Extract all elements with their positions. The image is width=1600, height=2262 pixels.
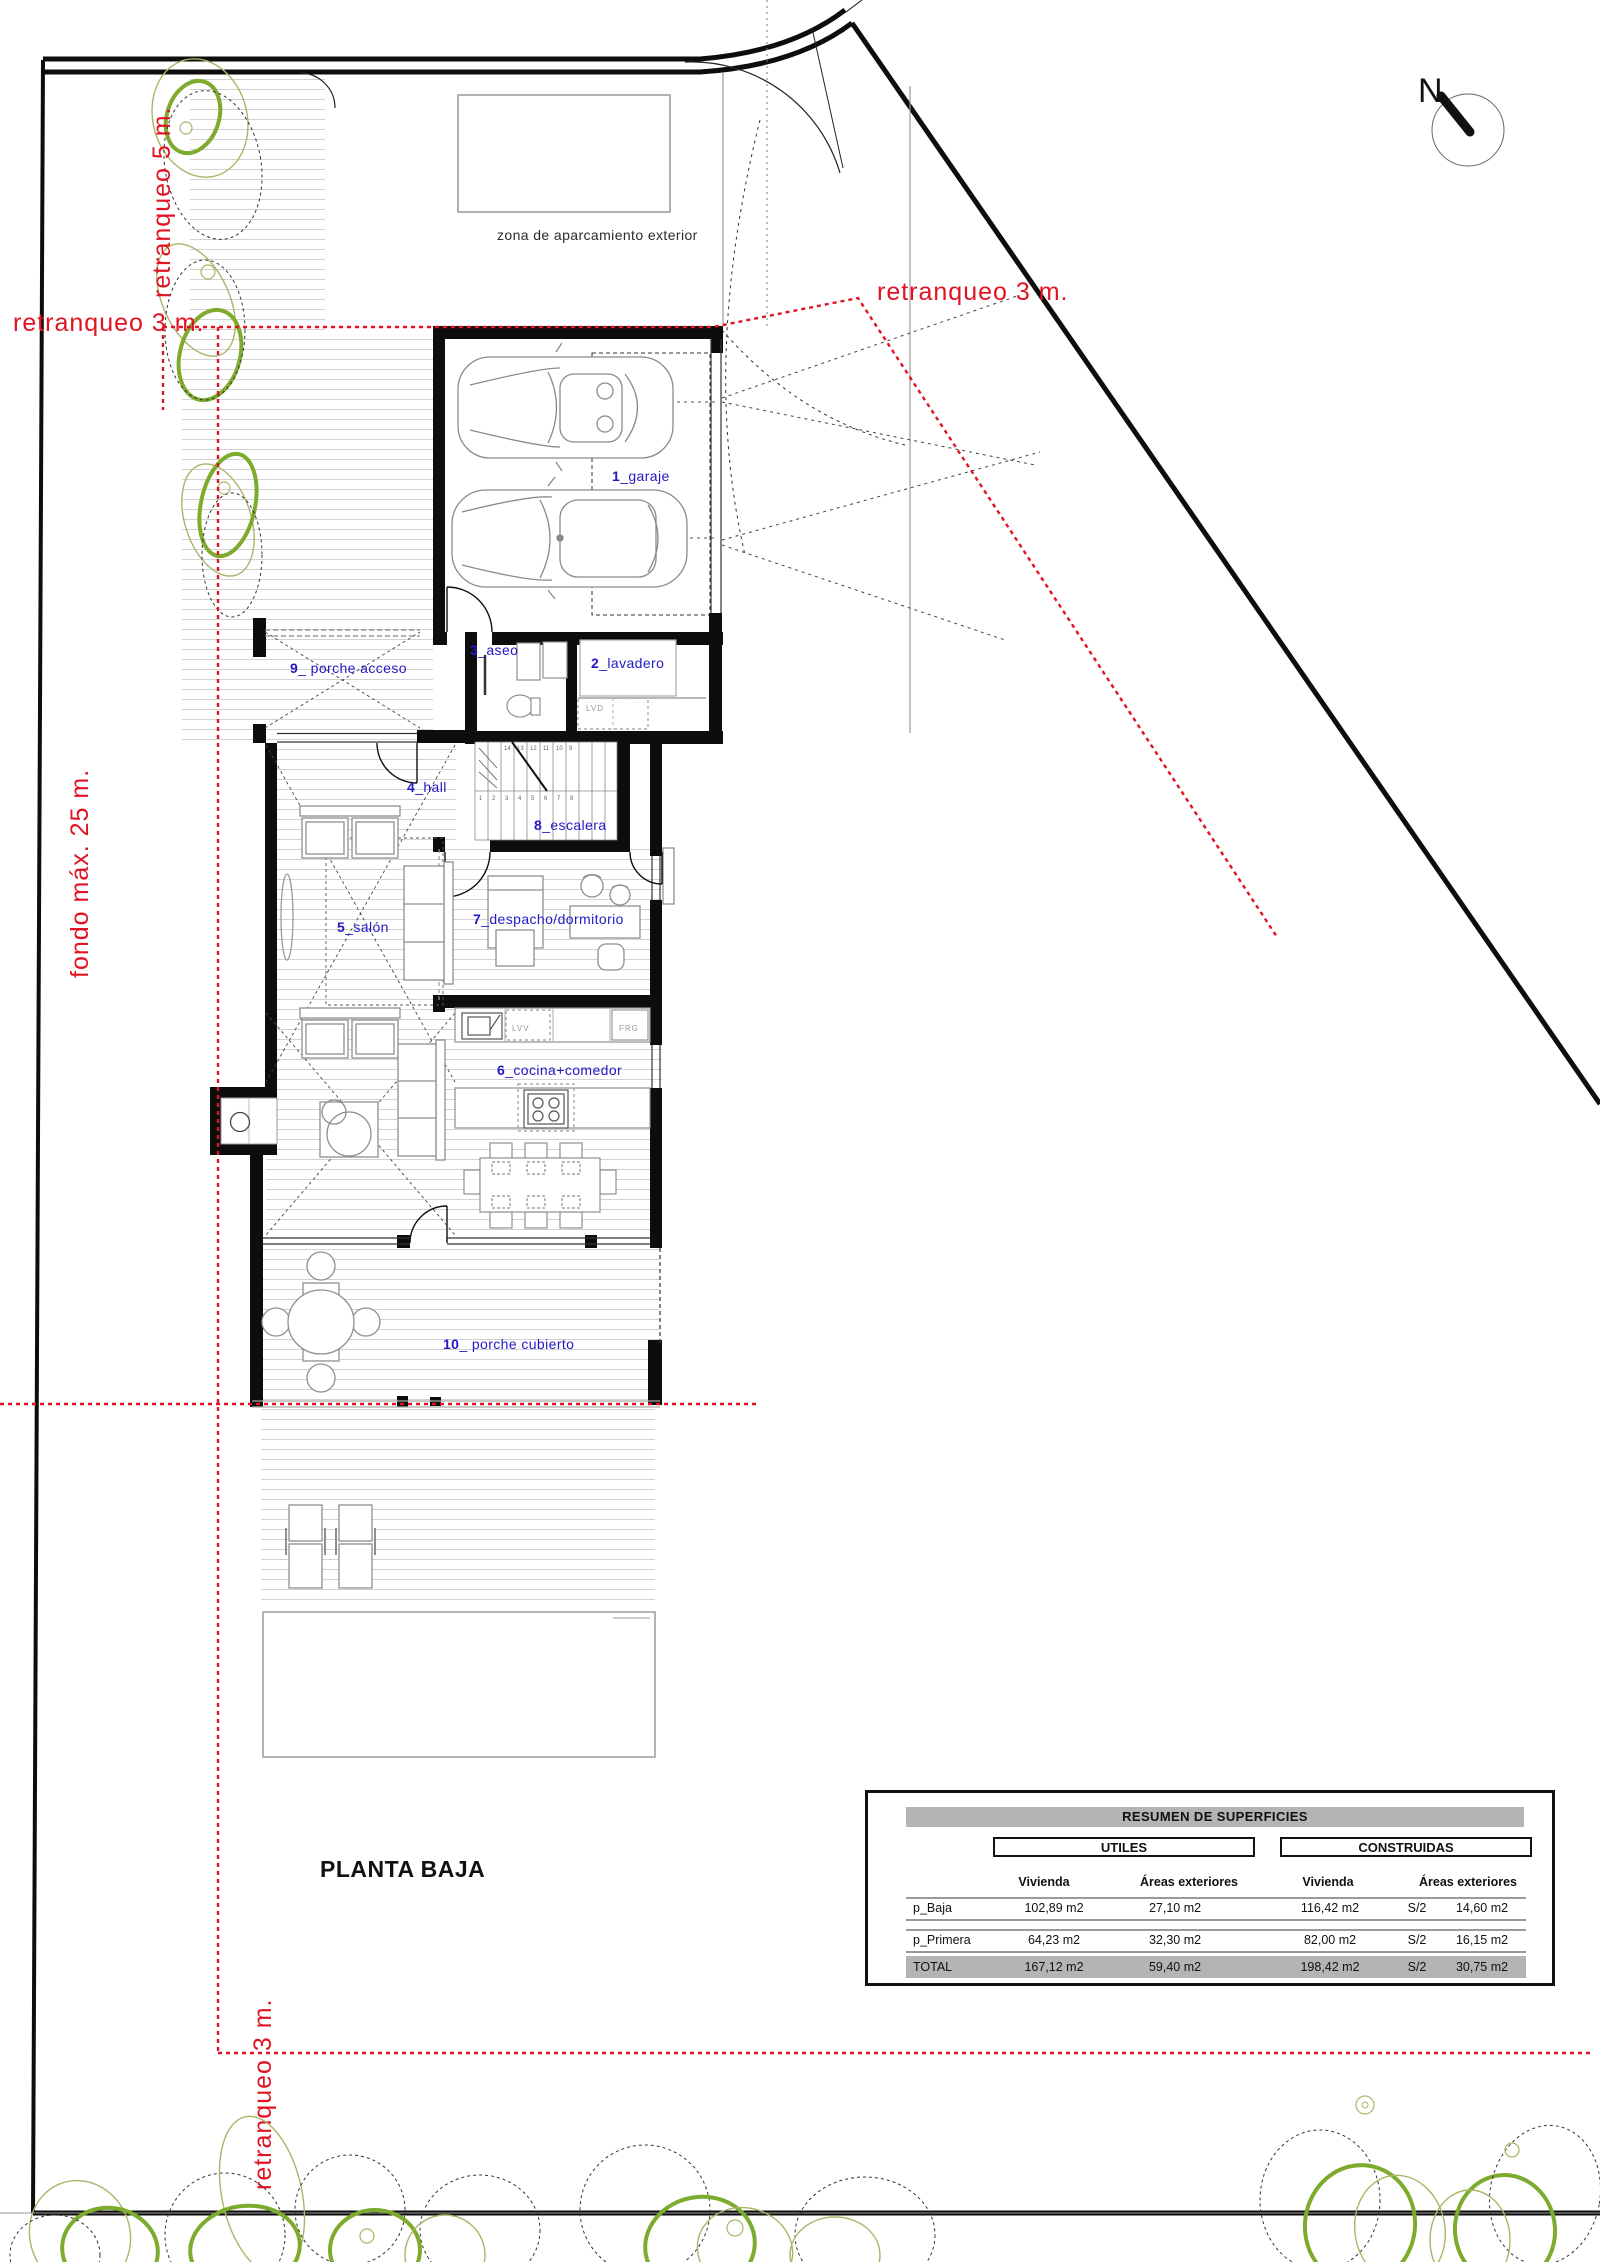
label-salon: 5_salón	[337, 919, 389, 935]
primera-constr-vivienda: 82,00 m2	[1304, 1933, 1356, 1947]
group-utiles: UTILES	[993, 1837, 1255, 1857]
label-escalera: 8_escalera	[534, 817, 607, 833]
garage-right-wall	[711, 339, 721, 613]
car-2	[452, 477, 687, 599]
primera-utiles-areas: 32,30 m2	[1149, 1933, 1201, 1947]
boundary-left	[33, 60, 43, 2213]
col-header-vivienda-utiles: Vivienda	[1018, 1875, 1069, 1889]
total-utiles-vivienda: 167,12 m2	[1024, 1960, 1083, 1974]
desk-chair	[598, 944, 624, 970]
stair-num: 14	[504, 746, 511, 752]
label-retranqueo-3m-bottom: retranqueo 3 m.	[249, 1999, 277, 2191]
summary-table-title: RESUMEN DE SUPERFICIES	[906, 1807, 1524, 1827]
label-hall: 4_hall	[407, 779, 447, 795]
primera-utiles-vivienda: 64,23 m2	[1028, 1933, 1080, 1947]
label-retranqueo-5m: retranqueo 5 m.	[148, 107, 176, 299]
total-constr-areas: 30,75 m2	[1456, 1960, 1508, 1974]
baja-utiles-vivienda: 102,89 m2	[1024, 1901, 1083, 1915]
rule	[906, 1929, 1526, 1931]
dining-table	[480, 1158, 600, 1212]
garage-door	[447, 587, 492, 632]
total-utiles-areas: 59,40 m2	[1149, 1960, 1201, 1974]
row-name-baja: p_Baja	[913, 1901, 952, 1915]
label-dishwasher: LVV	[512, 1024, 530, 1033]
stair-num: 10	[556, 746, 563, 752]
label-retranqueo-3m-right: retranqueo 3 m.	[877, 278, 1069, 306]
col-header-areas-constr: Áreas exteriores	[1419, 1875, 1517, 1889]
row-name-primera: p_Primera	[913, 1933, 971, 1947]
baja-s2: S/2	[1408, 1901, 1427, 1915]
col-header-areas-utiles: Áreas exteriores	[1140, 1875, 1238, 1889]
car-1	[458, 343, 673, 471]
label-parking-zone: zona de aparcamiento exterior	[497, 227, 698, 243]
boundary-diagonal	[852, 23, 1600, 1104]
fireplace	[221, 1098, 277, 1144]
stair-num: 13	[517, 746, 524, 752]
rule	[906, 1919, 1526, 1921]
plan-title: PLANTA BAJA	[320, 1856, 485, 1883]
baja-utiles-areas: 27,10 m2	[1149, 1901, 1201, 1915]
label-lavadero: 2_lavadero	[591, 655, 664, 671]
north-arrow: N	[1418, 72, 1504, 166]
vehicle-gate-arc	[685, 62, 840, 173]
primera-constr-areas: 16,15 m2	[1456, 1933, 1508, 1947]
group-construidas: CONSTRUIDAS	[1280, 1837, 1532, 1857]
floor-plan-canvas: 14 13 12 11 10 9 1 2 3 4 5 6 7 8	[0, 0, 1600, 2262]
north-needle	[1441, 96, 1470, 132]
stair-num: 12	[530, 746, 537, 752]
label-fridge: FRG	[619, 1024, 639, 1033]
label-washer: LVD	[586, 704, 604, 713]
baja-constr-areas: 14,60 m2	[1456, 1901, 1508, 1915]
label-retranqueo-3m-left: retranqueo 3 m.	[13, 309, 205, 337]
pool-area	[263, 1612, 655, 1757]
north-letter: N	[1418, 72, 1443, 110]
label-porche-acceso: 9_ porche acceso	[290, 660, 407, 676]
col-header-vivienda-constr: Vivienda	[1302, 1875, 1353, 1889]
label-fondo-max: fondo máx. 25 m.	[66, 769, 94, 978]
sight-lines	[722, 295, 1040, 640]
label-porche-cubierto: 10_ porche cubierto	[443, 1336, 574, 1352]
total-constr-vivienda: 198,42 m2	[1300, 1960, 1359, 1974]
label-garaje: 1_garaje	[612, 468, 670, 484]
label-cocina: 6_cocina+comedor	[497, 1062, 622, 1078]
total-band	[906, 1956, 1526, 1978]
total-name: TOTAL	[913, 1960, 952, 1974]
stair-num: 11	[543, 746, 550, 752]
sink	[468, 1017, 490, 1035]
summary-table: RESUMEN DE SUPERFICIES UTILES CONSTRUIDA…	[865, 1790, 1555, 1986]
label-aseo: 3_aseo	[470, 642, 518, 658]
rule	[906, 1897, 1526, 1899]
baja-constr-vivienda: 116,42 m2	[1301, 1901, 1359, 1915]
exterior-parking-zone	[458, 95, 670, 212]
total-s2: S/2	[1408, 1960, 1427, 1974]
label-despacho: 7_despacho/dormitorio	[473, 911, 624, 927]
garage	[452, 343, 718, 615]
rule	[906, 1951, 1526, 1953]
primera-s2: S/2	[1408, 1933, 1427, 1947]
toilet	[507, 695, 533, 717]
